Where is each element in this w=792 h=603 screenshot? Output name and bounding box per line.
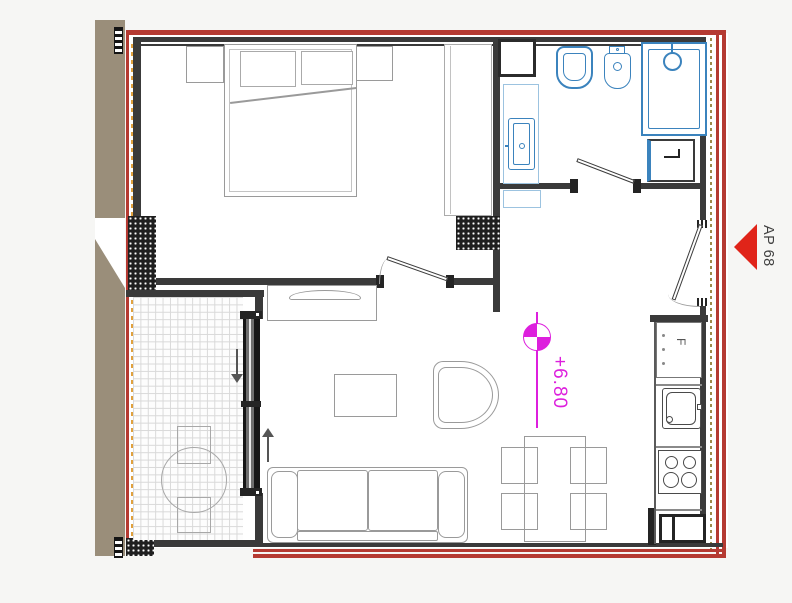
sink-drain-dot — [519, 143, 525, 149]
wall-bedroom-bathroom — [493, 42, 500, 312]
sofa-cushion-left — [297, 470, 368, 531]
nightstand-left — [186, 46, 224, 83]
kitchen-sink-drain — [666, 416, 673, 423]
wardrobe — [444, 44, 492, 216]
floor-plan: F +6.80 AP 68 — [0, 0, 792, 603]
arrow-up-shaft — [267, 436, 269, 462]
sofa-cushion-right — [368, 470, 438, 531]
level-value: +6.80 — [548, 356, 570, 409]
entrance-arrow-icon — [734, 224, 757, 270]
arrow-up-icon — [262, 428, 274, 437]
boundary-right-inner — [716, 35, 719, 558]
sliding-door-panel-1 — [243, 318, 260, 406]
base-cabinet — [659, 514, 706, 543]
washing-machine — [647, 139, 695, 182]
sliding-door-panel-2 — [243, 406, 260, 492]
bidet — [604, 53, 631, 89]
bathroom-door-post-left — [570, 179, 578, 193]
fridge-dot-2 — [662, 348, 665, 351]
toilet-bowl — [563, 53, 586, 81]
coffee-table — [334, 374, 397, 417]
boundary-right-outer — [722, 35, 726, 558]
wall-bedroom-bottom-left — [133, 278, 380, 285]
shaft-left — [128, 216, 156, 290]
sliding-door-cap-mid — [241, 401, 261, 407]
burner-large-1 — [663, 472, 679, 488]
sliding-door-dot-top — [256, 313, 259, 316]
duct-box — [498, 39, 536, 77]
fridge-dot-3 — [662, 362, 665, 365]
shaft-bedroom — [456, 216, 500, 250]
balcony-chair-top — [177, 426, 211, 464]
pillow-left — [240, 51, 296, 87]
hall-counter — [503, 190, 541, 208]
balcony-chair-bottom — [177, 497, 211, 533]
arrow-down-shaft — [236, 349, 238, 375]
cooktop — [658, 450, 702, 494]
boundary-bottom-outer — [253, 554, 726, 558]
nightstand-right — [356, 46, 393, 81]
boundary-bottom-inner — [253, 549, 726, 552]
sliding-door-dot-bottom — [256, 491, 259, 494]
burner-large-2 — [681, 472, 697, 488]
sideboard-item — [289, 290, 361, 300]
boundary-top — [126, 30, 726, 35]
apartment-label: AP 68 — [760, 225, 776, 267]
wall-top — [133, 37, 706, 42]
bidet-drain — [613, 62, 622, 71]
wall-balcony-top — [126, 290, 264, 297]
shaft-balcony — [126, 538, 154, 556]
arrow-down-icon — [231, 374, 243, 383]
wall-balcony-post-bottom — [255, 493, 263, 543]
counter-line-1 — [656, 384, 702, 386]
burner-small-2 — [683, 456, 696, 469]
bidet-dot — [616, 48, 619, 51]
wall-bathroom-bottom-right — [636, 183, 706, 189]
counter-line-2 — [656, 446, 702, 448]
sofa-armrest-left — [271, 471, 298, 538]
washing-machine-glyph-h — [664, 156, 680, 158]
sink-tap-tick — [505, 145, 509, 147]
fridge-dot-1 — [662, 334, 665, 337]
sofa-back — [297, 531, 438, 541]
neighbor-wall-notch — [95, 218, 125, 288]
insulation-marker-bottom — [114, 537, 123, 558]
kitchen-tap — [697, 404, 702, 410]
shower-head — [663, 52, 682, 71]
wall-kitchen-top — [650, 315, 708, 322]
level-symbol-icon — [523, 323, 551, 351]
fridge-label: F — [674, 338, 688, 345]
neighbor-wall — [95, 20, 125, 556]
wardrobe-door-line — [450, 46, 451, 214]
base-cabinet-divider — [672, 514, 675, 543]
insulation-marker-top — [114, 27, 123, 54]
counter-line-3 — [656, 509, 702, 511]
sofa-armrest-right — [438, 471, 465, 538]
burner-small-1 — [665, 456, 678, 469]
insulation-right — [710, 38, 712, 552]
dining-table — [524, 436, 586, 542]
pillow-right — [301, 51, 353, 85]
